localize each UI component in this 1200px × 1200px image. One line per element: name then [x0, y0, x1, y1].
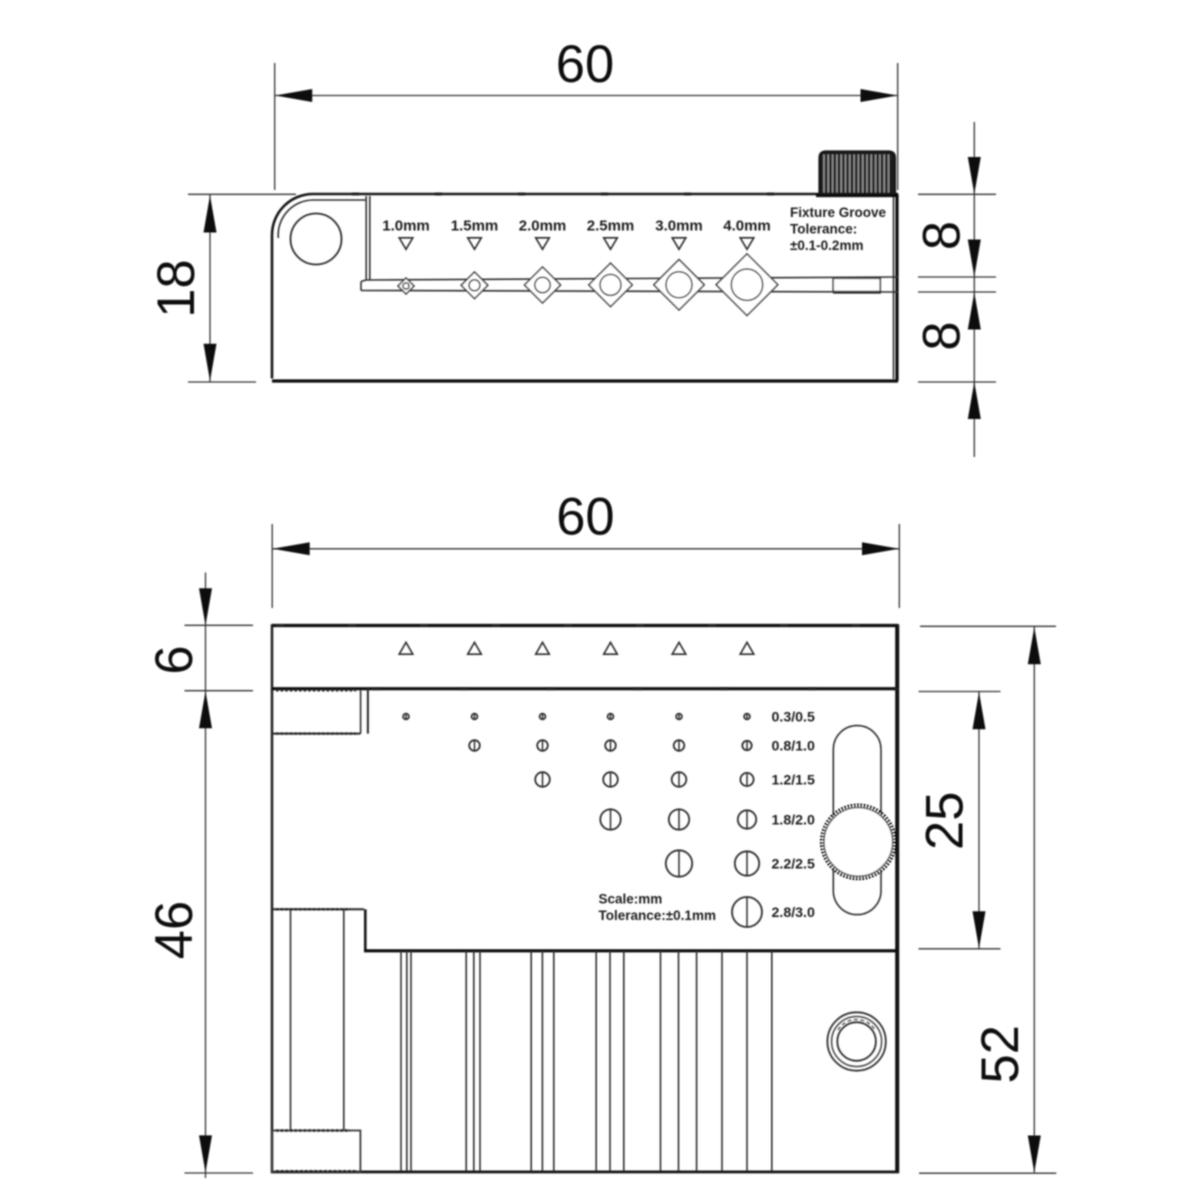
- svg-text:4.0mm: 4.0mm: [723, 218, 771, 235]
- svg-text:46: 46: [145, 901, 204, 959]
- svg-text:18: 18: [147, 259, 206, 317]
- svg-text:Tolerance:±0.1mm: Tolerance:±0.1mm: [599, 908, 716, 923]
- svg-text:60: 60: [556, 487, 614, 546]
- svg-text:8: 8: [912, 321, 971, 350]
- svg-text:0.8/1.0: 0.8/1.0: [772, 738, 815, 754]
- svg-text:8: 8: [912, 221, 971, 250]
- svg-text:1.5mm: 1.5mm: [451, 218, 499, 235]
- svg-text:25: 25: [915, 792, 974, 850]
- svg-text:1.8/2.0: 1.8/2.0: [772, 812, 815, 828]
- svg-text:Tolerance:: Tolerance:: [790, 222, 857, 237]
- svg-text:3.0mm: 3.0mm: [655, 218, 703, 235]
- svg-text:6: 6: [145, 645, 204, 674]
- svg-text:52: 52: [971, 1025, 1030, 1083]
- svg-text:2.0mm: 2.0mm: [519, 218, 567, 235]
- svg-text:0.3/0.5: 0.3/0.5: [772, 709, 815, 725]
- svg-text:60: 60: [556, 35, 614, 94]
- svg-text:2.8/3.0: 2.8/3.0: [772, 905, 815, 921]
- svg-text:2.5mm: 2.5mm: [587, 218, 635, 235]
- svg-text:2.2/2.5: 2.2/2.5: [772, 856, 815, 872]
- svg-text:Scale:mm: Scale:mm: [599, 892, 663, 907]
- svg-text:±0.1-0.2mm: ±0.1-0.2mm: [790, 238, 863, 253]
- svg-text:1.2/1.5: 1.2/1.5: [772, 772, 815, 788]
- svg-text:Fixture Groove: Fixture Groove: [790, 205, 887, 220]
- svg-text:1.0mm: 1.0mm: [382, 218, 430, 235]
